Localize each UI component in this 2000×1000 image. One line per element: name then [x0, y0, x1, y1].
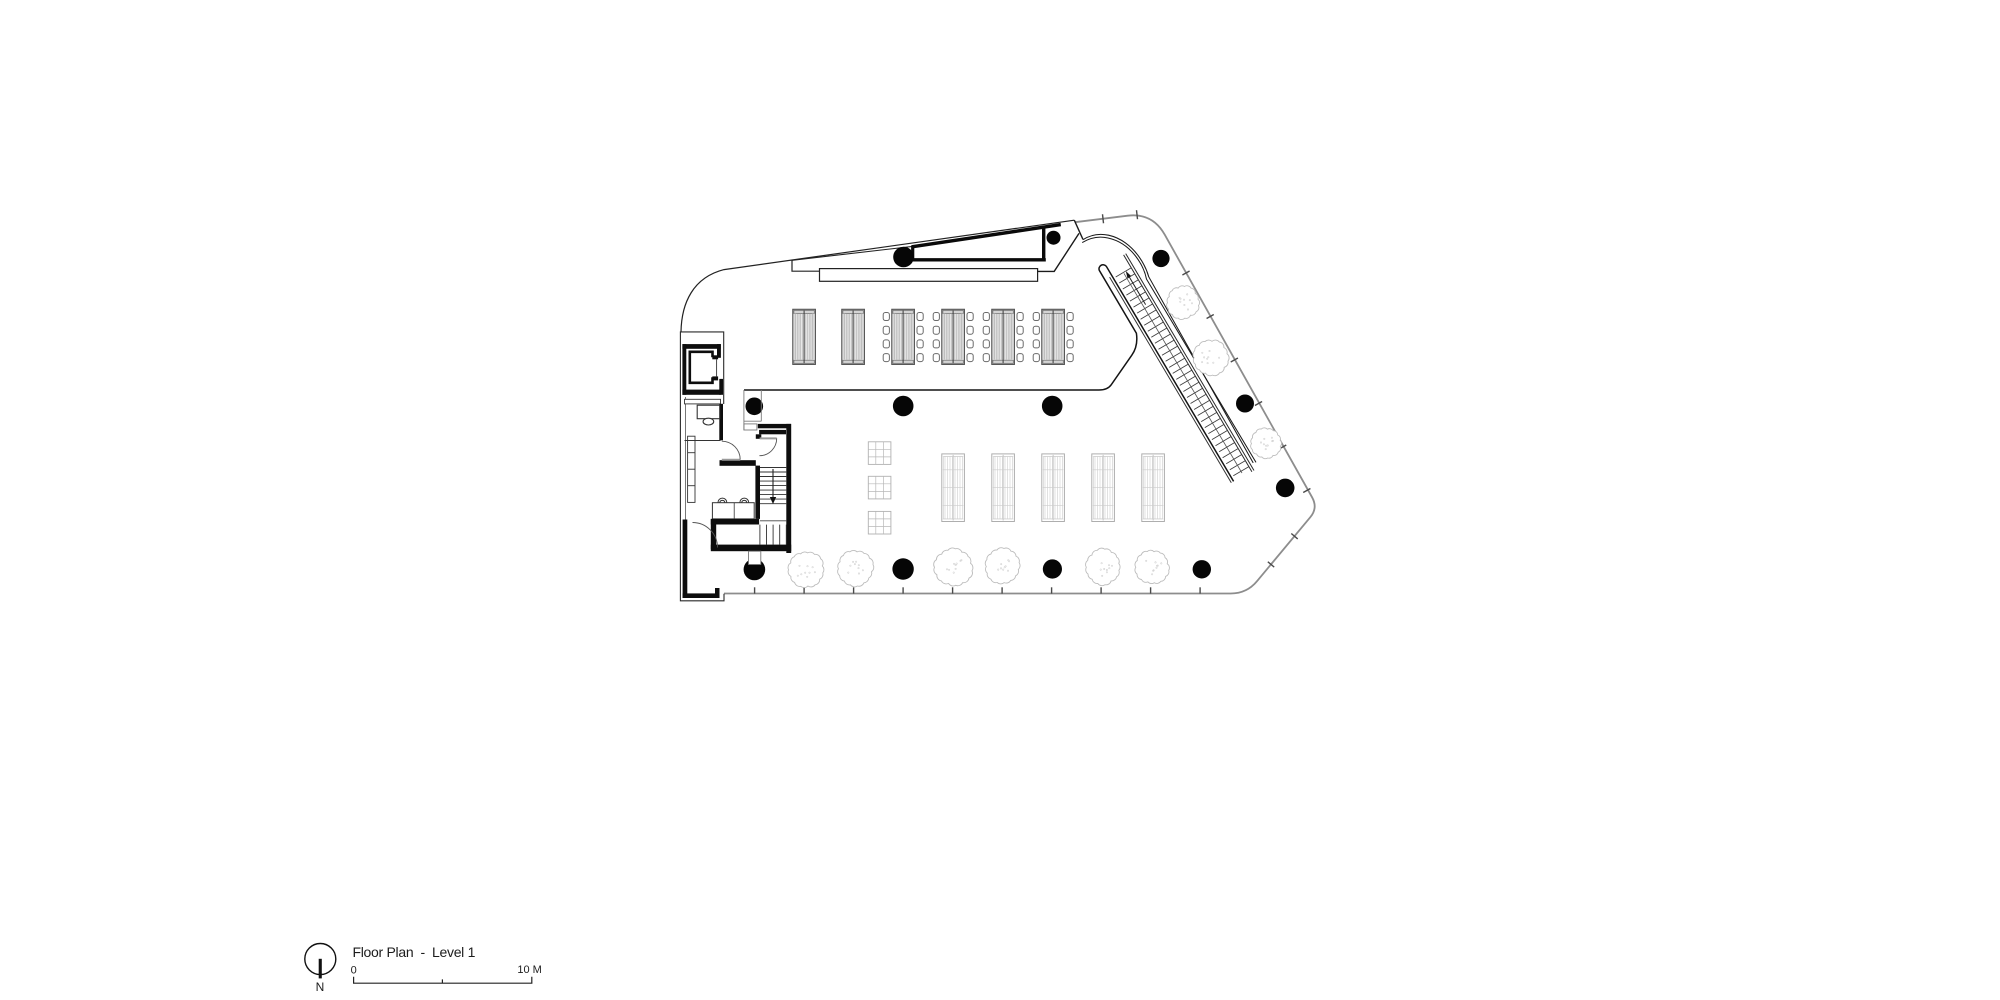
svg-text:Floor Plan - Level 1: Floor Plan - Level 1: [353, 944, 476, 960]
svg-text:N: N: [316, 980, 325, 994]
svg-text:10 M: 10 M: [517, 964, 541, 976]
svg-text:0: 0: [351, 964, 357, 976]
